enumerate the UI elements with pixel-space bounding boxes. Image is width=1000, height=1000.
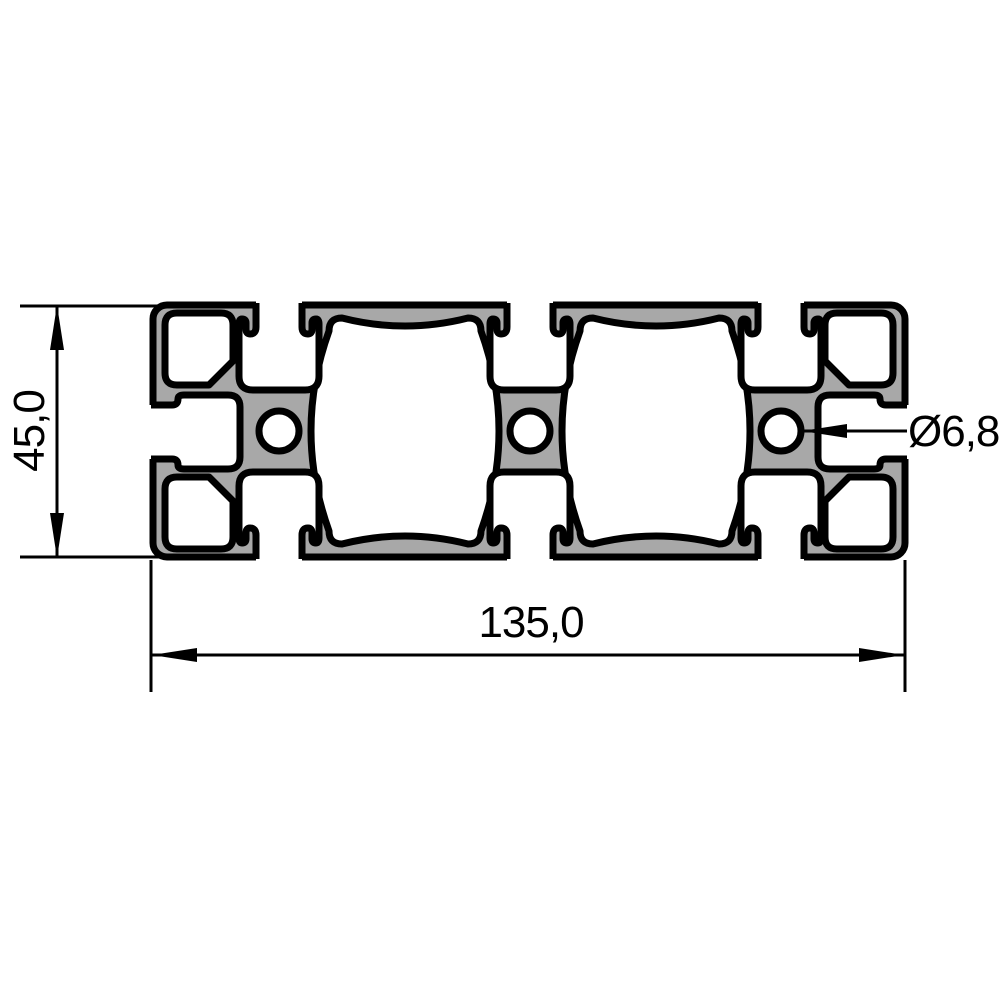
corner-cavity-bottom-left [165, 477, 233, 549]
drawing-canvas: 45,0 135,0 Ø6,8 [0, 0, 1000, 1000]
width-dimension: 135,0 [151, 560, 905, 692]
core-hole-left [259, 411, 299, 451]
arrowhead-up [50, 305, 64, 350]
large-cavity-right [562, 318, 750, 544]
core-hole-right [761, 411, 801, 451]
width-dimension-label: 135,0 [478, 598, 583, 647]
height-dimension-label: 45,0 [5, 390, 54, 472]
hole-diameter-label: Ø6,8 [908, 407, 999, 456]
technical-drawing: 45,0 135,0 Ø6,8 [0, 0, 1000, 1000]
corner-cavity-top-right [825, 313, 893, 385]
large-cavity-left [311, 318, 499, 544]
arrowhead-down [50, 513, 64, 558]
arrowhead-right [859, 648, 904, 662]
corner-cavity-bottom-right [825, 477, 893, 549]
corner-cavity-top-left [165, 313, 233, 385]
profile-cross-section [147, 299, 911, 563]
height-dimension: 45,0 [5, 305, 160, 558]
core-hole-center [510, 411, 550, 451]
end-slot-left [147, 395, 240, 469]
arrowhead-left [152, 648, 197, 662]
